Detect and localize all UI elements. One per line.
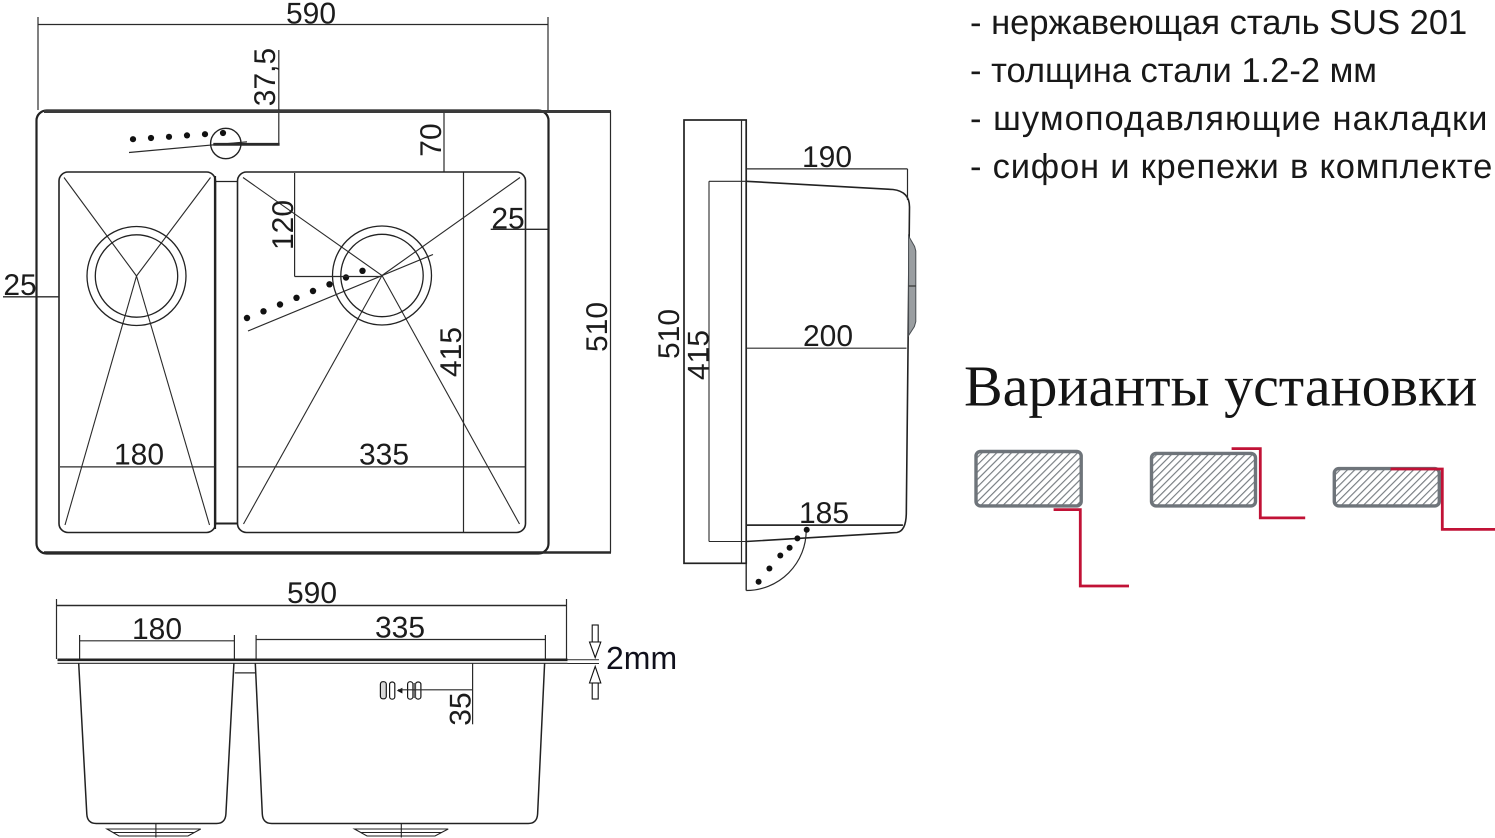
svg-text:200: 200 bbox=[803, 320, 853, 353]
svg-text:- нержавеющая сталь SUS 201: - нержавеющая сталь SUS 201 bbox=[970, 4, 1467, 42]
svg-text:35: 35 bbox=[445, 692, 478, 725]
svg-text:180: 180 bbox=[132, 613, 182, 646]
svg-text:590: 590 bbox=[287, 577, 337, 610]
svg-text:37,5: 37,5 bbox=[249, 48, 282, 106]
svg-text:- шумоподавляющие накладки: - шумоподавляющие накладки bbox=[970, 100, 1488, 138]
svg-text:185: 185 bbox=[799, 497, 849, 530]
svg-text:2mm: 2mm bbox=[606, 640, 677, 676]
svg-text:190: 190 bbox=[802, 141, 852, 174]
svg-text:335: 335 bbox=[375, 612, 425, 645]
svg-text:510: 510 bbox=[581, 302, 614, 352]
svg-text:335: 335 bbox=[359, 439, 409, 472]
svg-text:590: 590 bbox=[286, 0, 336, 31]
svg-text:180: 180 bbox=[114, 439, 164, 472]
svg-text:- сифон и крепежи в комплекте: - сифон и крепежи в комплекте bbox=[970, 148, 1493, 186]
svg-text:510: 510 bbox=[653, 309, 686, 359]
svg-text:Варианты установки: Варианты установки bbox=[964, 354, 1477, 419]
svg-text:70: 70 bbox=[415, 123, 448, 156]
svg-text:120: 120 bbox=[267, 200, 300, 250]
svg-text:- толщина стали 1.2-2 мм: - толщина стали 1.2-2 мм bbox=[970, 52, 1377, 90]
svg-text:25: 25 bbox=[491, 203, 524, 236]
svg-text:415: 415 bbox=[683, 330, 716, 380]
svg-text:415: 415 bbox=[435, 327, 468, 377]
